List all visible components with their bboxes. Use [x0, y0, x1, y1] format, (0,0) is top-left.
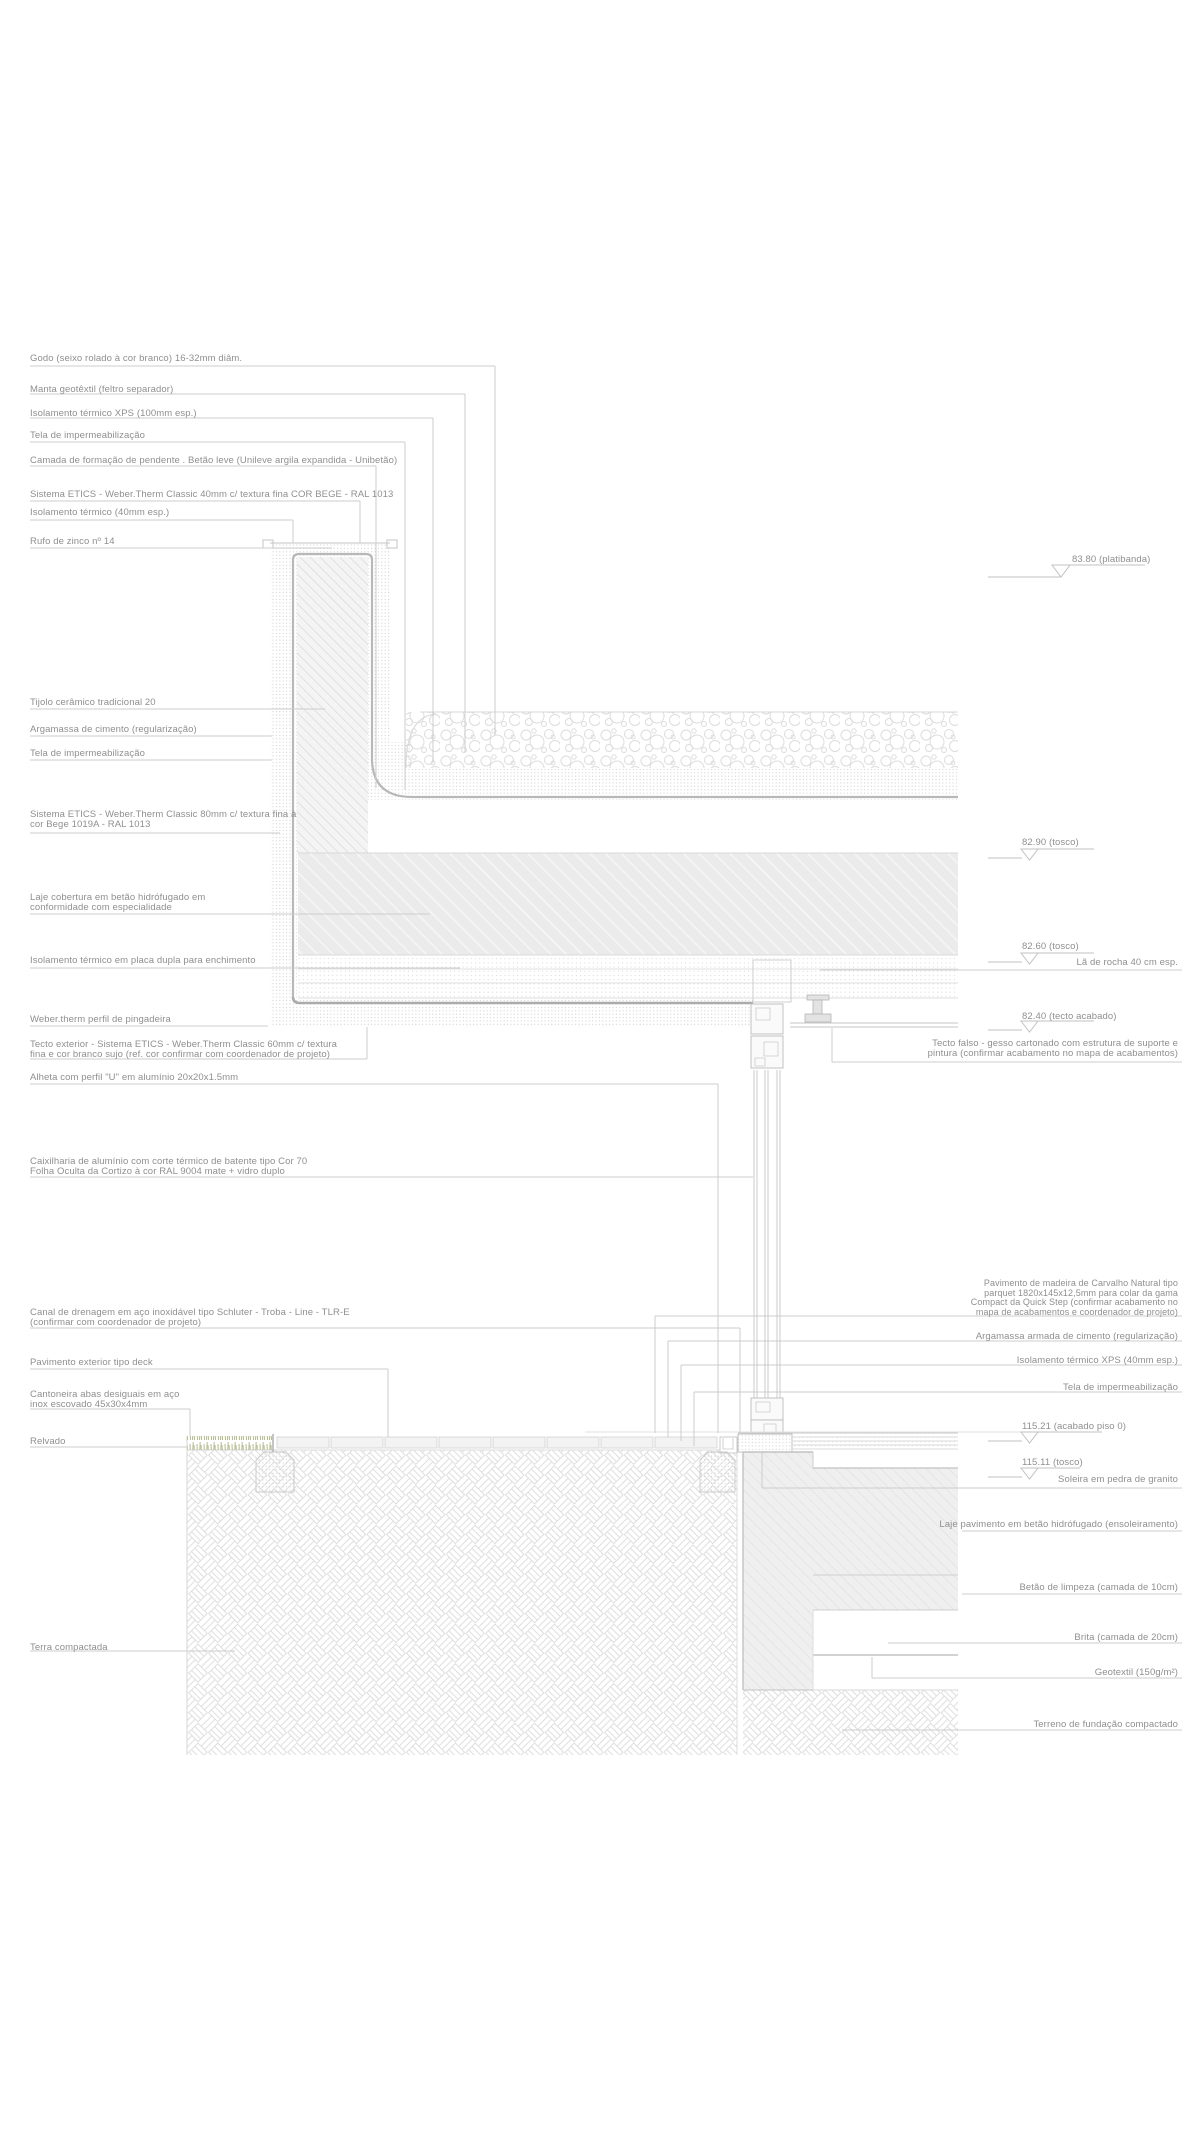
label-camada-formacao-pendente: Camada de formação de pendente . Betão l… — [30, 455, 397, 466]
parapet-brick-core — [297, 557, 368, 853]
label-pavimento-madeira: Pavimento de madeira de Carvalho Natural… — [928, 1279, 1178, 1317]
granite-sill — [738, 1434, 792, 1452]
level-115-11: 115.11 (tosco) — [1022, 1457, 1083, 1468]
label-soleira-granito: Soleira em pedra de granito — [1058, 1474, 1178, 1485]
label-terreno-fundacao: Terreno de fundação compactado — [1033, 1719, 1178, 1730]
level-115-21: 115.21 (acabado piso 0) — [1022, 1421, 1126, 1432]
level-82-60: 82.60 (tosco) — [1022, 941, 1079, 952]
label-argamassa-cimento: Argamassa de cimento (regularização) — [30, 724, 197, 735]
gravel-layer — [406, 712, 958, 768]
label-tijolo-ceramico: Tijolo cerâmico tradicional 20 — [30, 697, 156, 708]
foundation-soil — [743, 1690, 958, 1755]
deck-boards — [277, 1437, 717, 1450]
label-argamassa-armada: Argamassa armada de cimento (regularizaç… — [976, 1331, 1178, 1342]
label-godo: Godo (seixo rolado à cor branco) 16-32mm… — [30, 353, 242, 364]
grass-strip — [187, 1436, 272, 1450]
section-drawing — [0, 0, 1200, 2134]
detail-sheet: Godo (seixo rolado à cor branco) 16-32mm… — [0, 0, 1200, 2134]
label-pavimento-deck: Pavimento exterior tipo deck — [30, 1357, 153, 1368]
label-laje-cobertura: Laje cobertura em betão hidrófugado em c… — [30, 893, 310, 913]
drainage-channel — [720, 1437, 737, 1453]
label-tela-impermeabilizacao-1: Tela de impermeabilização — [30, 430, 145, 441]
label-cantoneira-inox: Cantoneira abas desiguais em aço inox es… — [30, 1390, 230, 1410]
label-isolamento-placa-dupla: Isolamento térmico em placa dupla para e… — [30, 955, 256, 966]
label-rufo-zinco: Rufo de zinco nº 14 — [30, 536, 115, 547]
label-terra-compactada: Terra compactada — [30, 1642, 108, 1653]
ceiling-insulation-layer — [298, 955, 958, 998]
label-isolamento-termico-40: Isolamento térmico (40mm esp.) — [30, 507, 169, 518]
label-sistema-etics-40: Sistema ETICS - Weber.Therm Classic 40mm… — [30, 489, 393, 500]
label-manta-geotextil: Manta geotêxtil (feltro separador) — [30, 384, 173, 395]
label-tela-impermeabilizacao-3: Tela de impermeabilização — [1063, 1382, 1178, 1393]
level-82-90: 82.90 (tosco) — [1022, 837, 1079, 848]
roof-slab — [298, 853, 958, 955]
label-sistema-etics-80: Sistema ETICS - Weber.Therm Classic 80mm… — [30, 810, 360, 830]
glazing — [754, 1070, 780, 1398]
label-betao-limpeza: Betão de limpeza (camada de 10cm) — [1019, 1582, 1178, 1593]
label-tela-impermeabilizacao-2: Tela de impermeabilização — [30, 748, 145, 759]
label-tecto-exterior-etics: Tecto exterior - Sistema ETICS - Weber.T… — [30, 1040, 400, 1060]
label-brita: Brita (camada de 20cm) — [1074, 1632, 1178, 1643]
label-alheta-perfil-u: Alheta com perfil "U" em alumínio 20x20x… — [30, 1072, 238, 1083]
label-caixilharia-aluminio: Caixilharia de alumínio com corte térmic… — [30, 1157, 390, 1177]
label-relvado: Relvado — [30, 1436, 66, 1447]
label-geotextil: Geotextil (150g/m²) — [1095, 1667, 1178, 1678]
window-frame — [751, 1004, 783, 1434]
label-isolamento-xps-40: Isolamento térmico XPS (40mm esp.) — [1017, 1355, 1178, 1366]
level-platibanda: 83.80 (platibanda) — [1072, 554, 1150, 565]
label-isolamento-xps-100: Isolamento térmico XPS (100mm esp.) — [30, 408, 197, 419]
label-laje-pavimento: Laje pavimento em betão hidrófugado (ens… — [939, 1519, 1178, 1530]
label-weber-pingadeira: Weber.therm perfil de pingadeira — [30, 1014, 171, 1025]
level-82-40: 82.40 (tecto acabado) — [1022, 1011, 1117, 1022]
false-ceiling — [790, 995, 958, 1027]
label-tecto-falso: Tecto falso - gesso cartonado com estrut… — [898, 1039, 1178, 1059]
label-canal-drenagem: Canal de drenagem em aço inoxidável tipo… — [30, 1308, 420, 1328]
label-la-de-rocha: Lã de rocha 40 cm esp. — [1077, 957, 1178, 968]
